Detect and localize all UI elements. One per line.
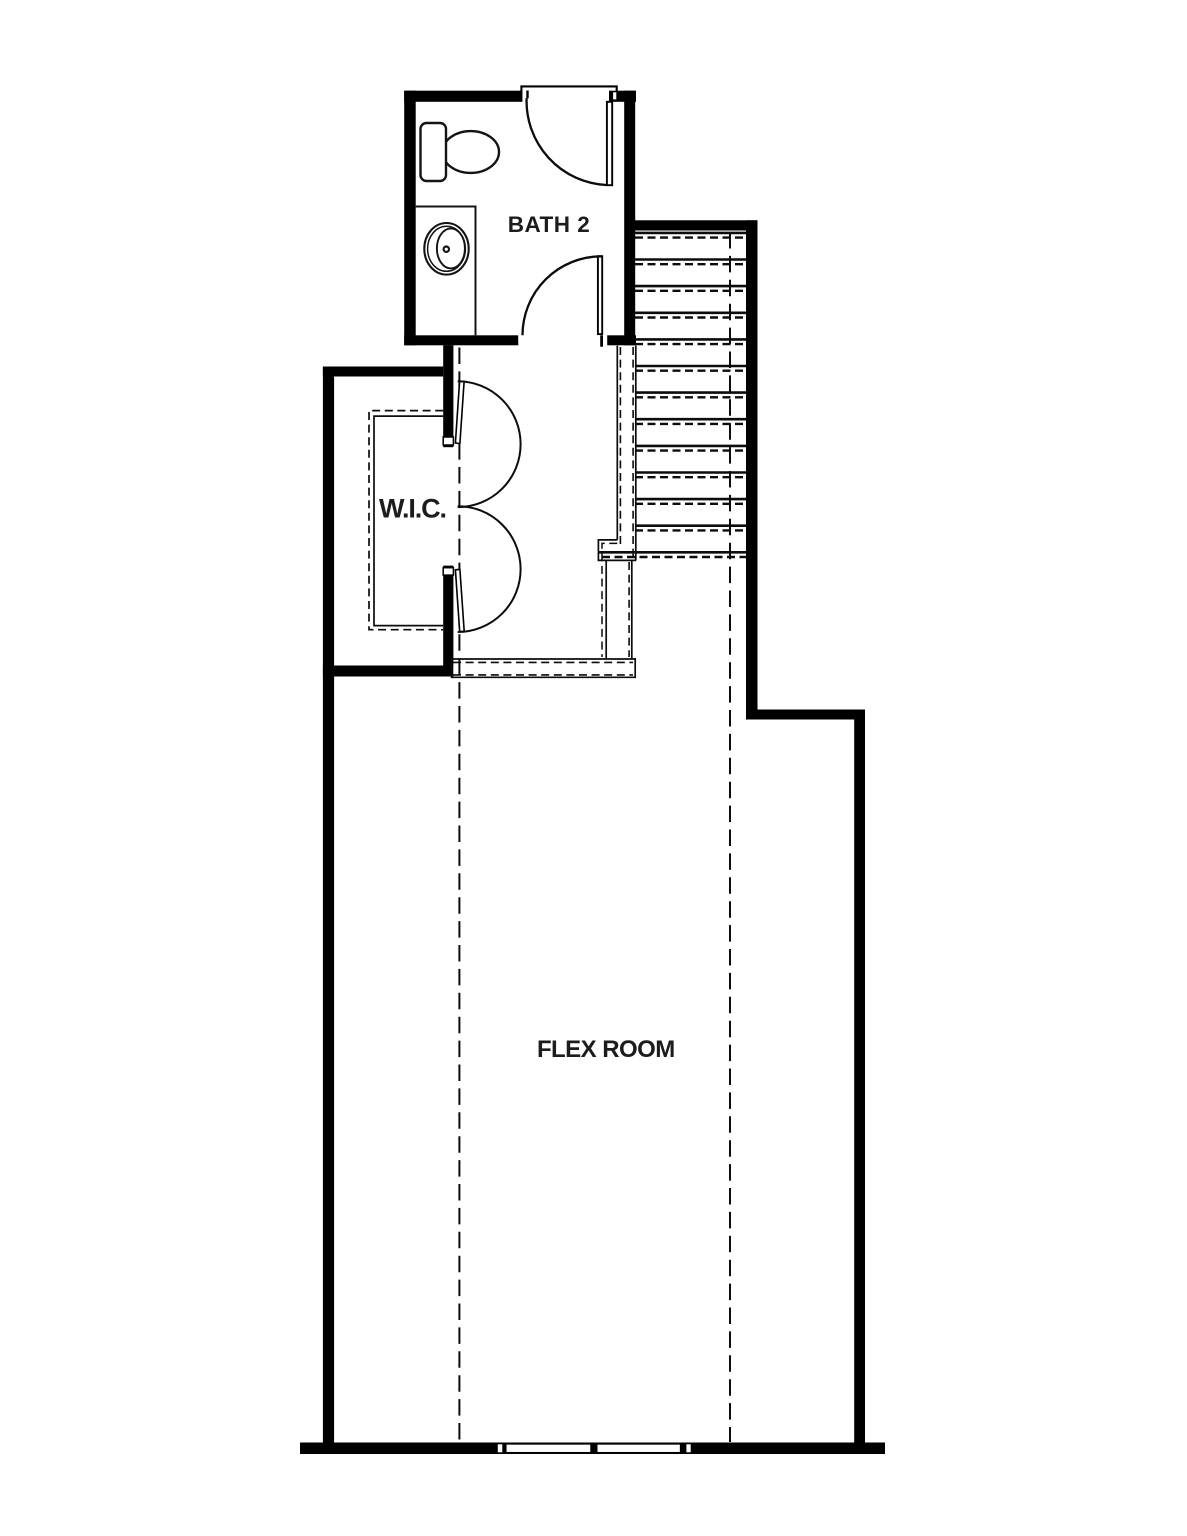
svg-text:FLEX ROOM: FLEX ROOM — [537, 1036, 675, 1063]
svg-text:BATH 2: BATH 2 — [508, 212, 591, 237]
svg-text:W.I.C.: W.I.C. — [379, 494, 446, 524]
